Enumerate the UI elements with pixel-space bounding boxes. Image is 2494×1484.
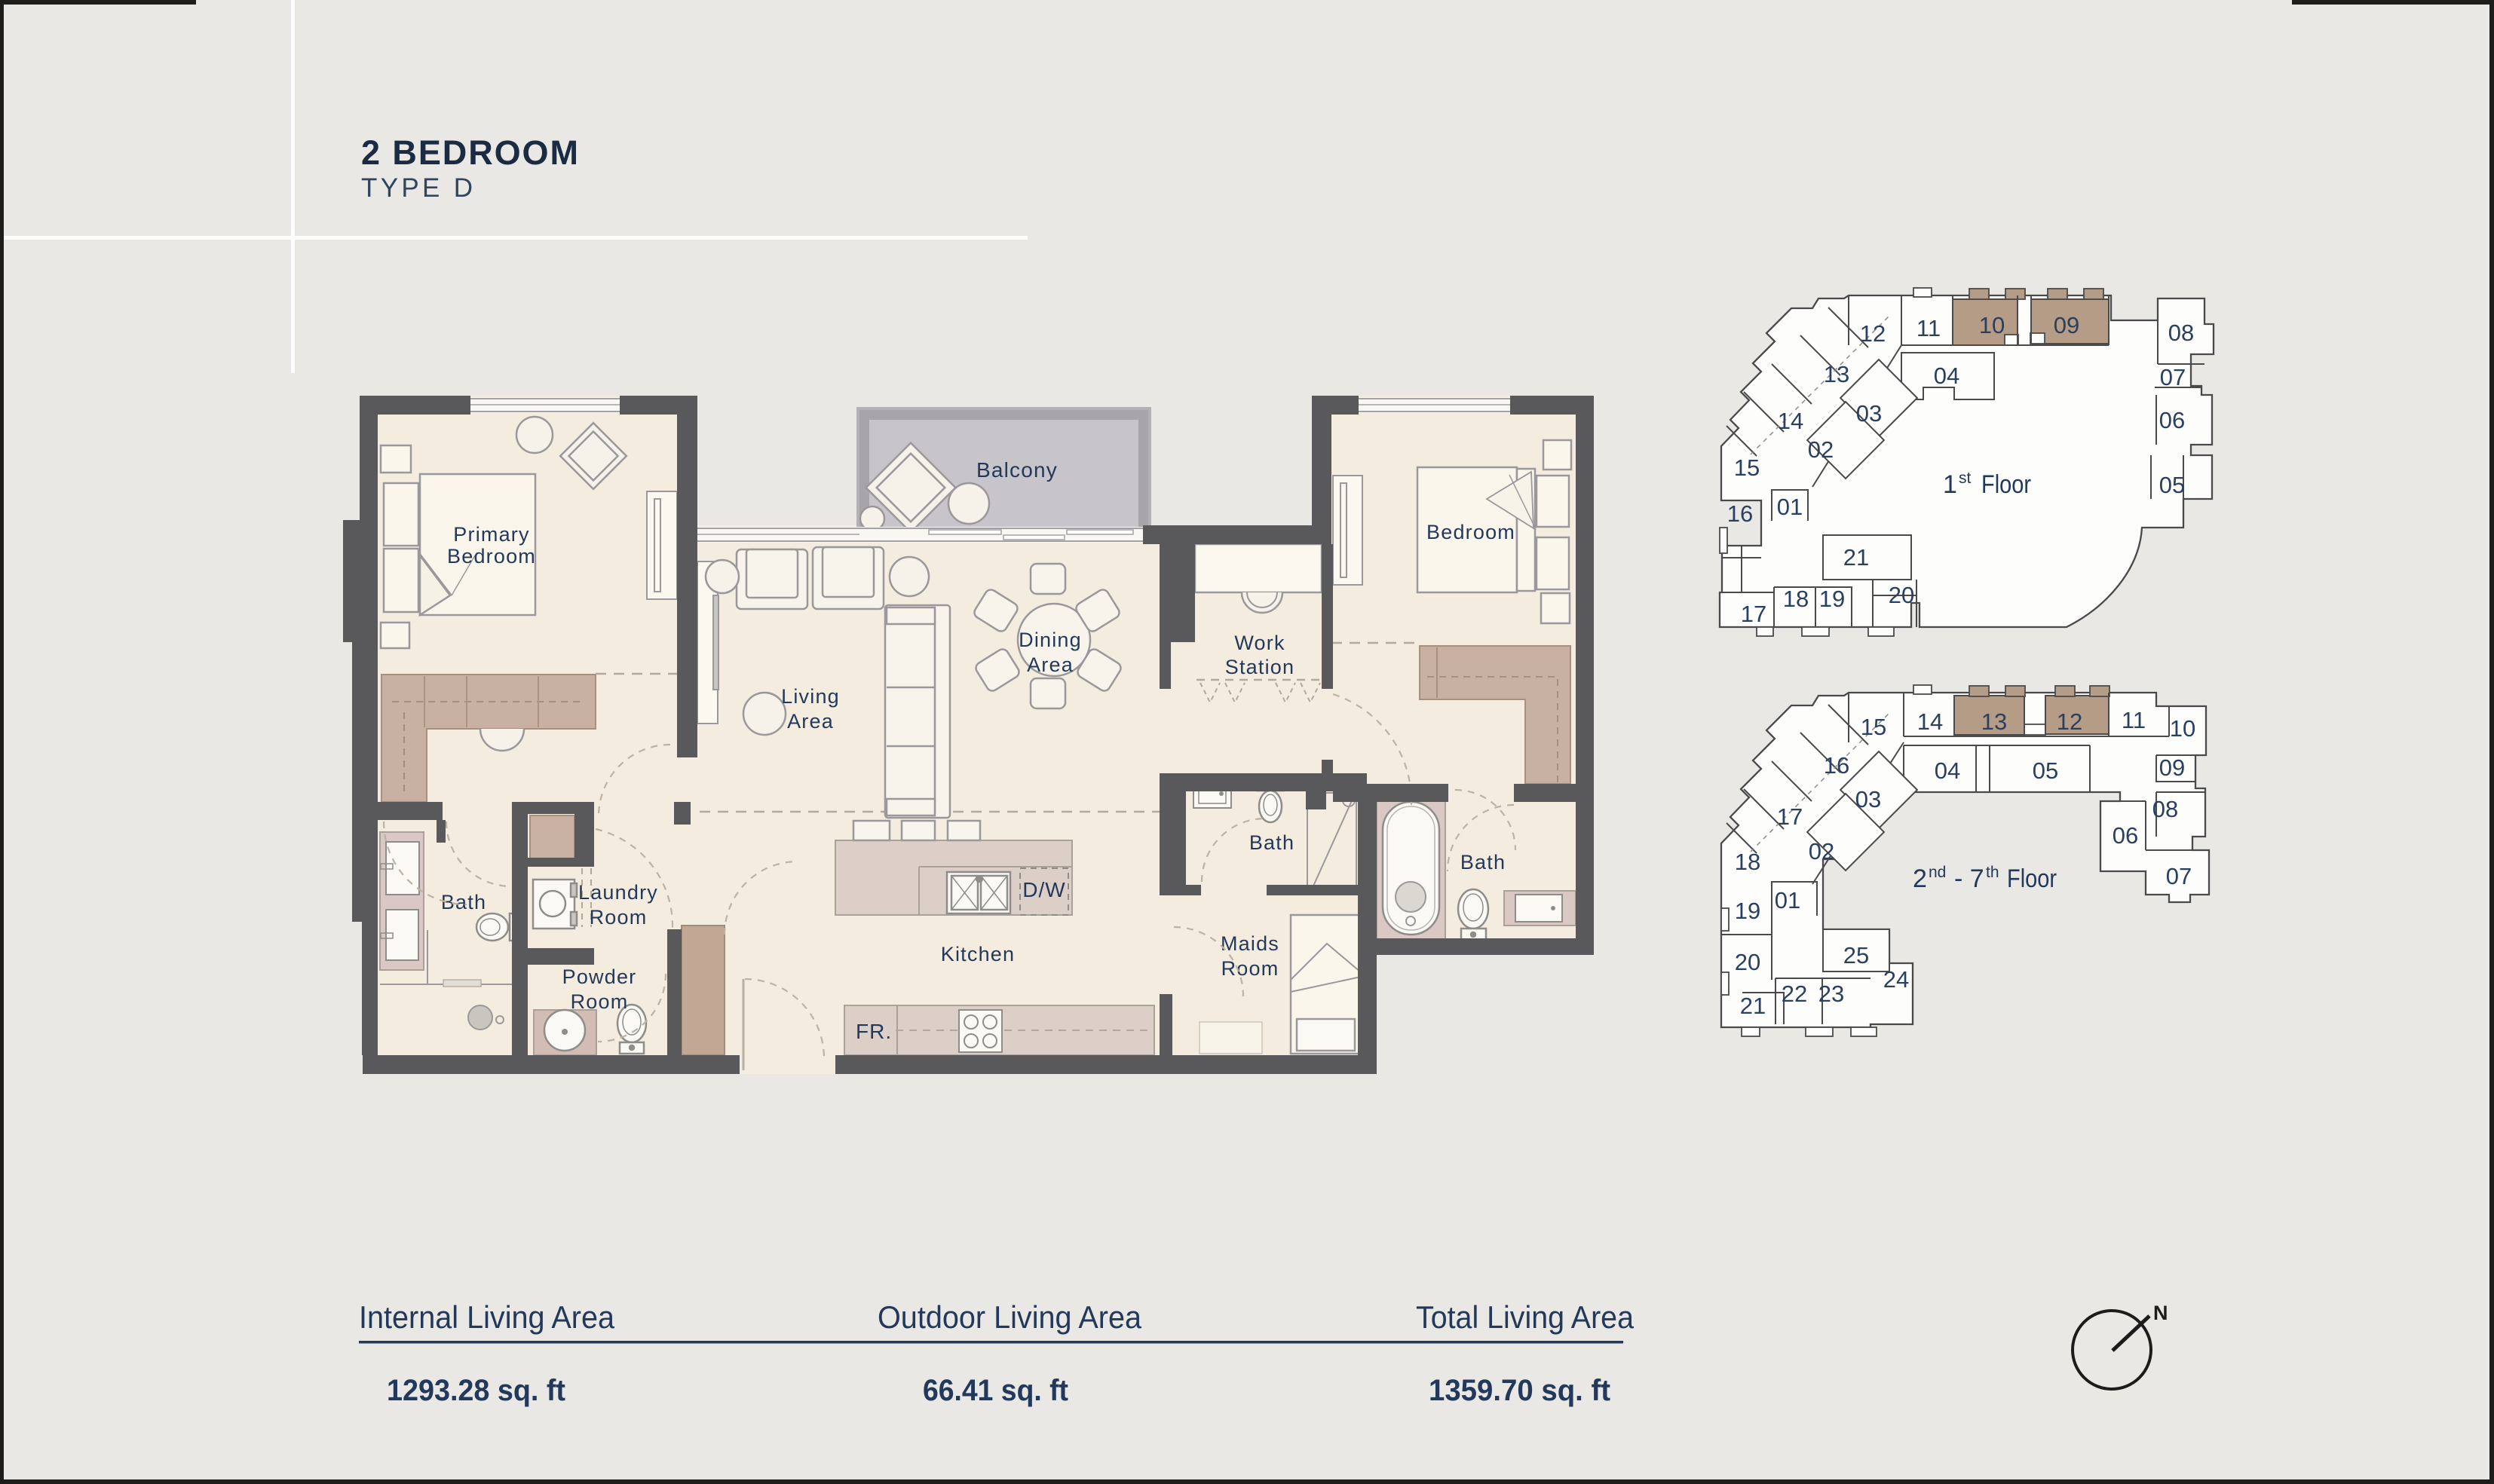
svg-text:Maids: Maids <box>1221 932 1279 955</box>
svg-text:03: 03 <box>1855 786 1881 812</box>
svg-text:22: 22 <box>1782 981 1807 1007</box>
svg-text:21: 21 <box>1843 544 1869 571</box>
svg-text:02: 02 <box>1809 838 1834 864</box>
svg-text:09: 09 <box>2054 312 2079 338</box>
svg-text:21: 21 <box>1740 993 1766 1019</box>
svg-text:Balcony: Balcony <box>976 458 1058 482</box>
svg-text:Area: Area <box>1027 653 1074 676</box>
svg-text:19: 19 <box>1735 898 1760 924</box>
svg-text:Outdoor Living Area: Outdoor Living Area <box>878 1299 1142 1335</box>
svg-text:08: 08 <box>2152 796 2178 822</box>
svg-text:Room: Room <box>571 990 629 1013</box>
svg-text:14: 14 <box>1778 408 1803 434</box>
svg-text:Floor: Floor <box>1981 470 2031 499</box>
svg-text:01: 01 <box>1777 494 1803 520</box>
svg-text:17: 17 <box>1777 803 1803 830</box>
svg-text:16: 16 <box>1824 752 1849 779</box>
svg-text:1: 1 <box>1943 470 1957 499</box>
svg-text:15: 15 <box>1861 714 1886 740</box>
svg-text:18: 18 <box>1783 586 1809 612</box>
svg-text:12: 12 <box>2057 708 2082 735</box>
svg-text:12: 12 <box>1860 320 1886 347</box>
svg-text:1359.70 sq. ft: 1359.70 sq. ft <box>1429 1374 1610 1407</box>
svg-text:04: 04 <box>1935 757 1960 784</box>
svg-text:25: 25 <box>1843 942 1869 968</box>
svg-text:05: 05 <box>2159 472 2185 498</box>
svg-text:20: 20 <box>1735 949 1760 975</box>
svg-text:Work: Work <box>1234 632 1285 654</box>
svg-text:Room: Room <box>590 906 648 929</box>
svg-text:11: 11 <box>2122 707 2146 733</box>
svg-text:07: 07 <box>2160 364 2186 390</box>
svg-text:nd: nd <box>1929 864 1946 881</box>
svg-text:Bedroom: Bedroom <box>1426 521 1515 543</box>
svg-text:Internal Living Area: Internal Living Area <box>359 1299 615 1335</box>
svg-text:13: 13 <box>1981 708 2007 735</box>
svg-text:16: 16 <box>1727 500 1753 527</box>
svg-text:18: 18 <box>1735 849 1760 875</box>
svg-text:Powder: Powder <box>562 965 637 988</box>
svg-text:11: 11 <box>1916 315 1941 341</box>
svg-text:st: st <box>1959 470 1972 487</box>
svg-text:Laundry: Laundry <box>578 881 658 904</box>
svg-text:Total Living Area: Total Living Area <box>1416 1299 1635 1335</box>
svg-text:07: 07 <box>2166 863 2192 889</box>
svg-text:1293.28 sq. ft: 1293.28 sq. ft <box>387 1374 565 1407</box>
svg-text:Bedroom: Bedroom <box>447 545 536 568</box>
svg-text:09: 09 <box>2159 754 2185 781</box>
svg-text:2: 2 <box>1913 864 1927 893</box>
svg-text:Bath: Bath <box>1460 851 1506 874</box>
svg-text:06: 06 <box>2159 407 2185 433</box>
svg-text:Dining: Dining <box>1019 629 1082 651</box>
svg-text:08: 08 <box>2168 320 2194 346</box>
svg-text:Kitchen: Kitchen <box>941 943 1015 965</box>
svg-text:2 BEDROOM: 2 BEDROOM <box>361 133 578 172</box>
svg-text:20: 20 <box>1889 582 1914 608</box>
svg-text:04: 04 <box>1934 363 1959 389</box>
svg-text:03: 03 <box>1856 400 1882 427</box>
svg-text:23: 23 <box>1818 981 1844 1007</box>
svg-text:Station: Station <box>1225 656 1294 678</box>
svg-text:FR.: FR. <box>856 1020 892 1043</box>
svg-text:Primary: Primary <box>453 523 529 546</box>
svg-text:Living: Living <box>781 685 840 708</box>
svg-text:10: 10 <box>1979 312 2005 338</box>
svg-text:Area: Area <box>787 710 834 733</box>
svg-text:19: 19 <box>1819 586 1845 612</box>
svg-text:24: 24 <box>1883 966 1909 993</box>
svg-text:Floor: Floor <box>2007 864 2057 893</box>
svg-text:15: 15 <box>1734 454 1760 481</box>
svg-text:D/W: D/W <box>1022 878 1065 901</box>
svg-text:14: 14 <box>1917 708 1943 735</box>
svg-text:02: 02 <box>1808 436 1834 463</box>
svg-text:05: 05 <box>2033 757 2058 784</box>
svg-text:10: 10 <box>2170 715 2195 742</box>
svg-text:th: th <box>1986 864 1999 881</box>
svg-text:17: 17 <box>1741 601 1766 627</box>
svg-text:- 7: - 7 <box>1954 864 1984 893</box>
svg-text:Bath: Bath <box>1249 831 1294 854</box>
svg-text:Room: Room <box>1221 957 1279 980</box>
svg-text:06: 06 <box>2113 822 2138 849</box>
svg-text:Bath: Bath <box>441 891 486 913</box>
svg-text:N: N <box>2153 1302 2168 1324</box>
svg-text:13: 13 <box>1824 361 1849 387</box>
svg-text:66.41 sq. ft: 66.41 sq. ft <box>923 1374 1068 1407</box>
svg-text:01: 01 <box>1775 887 1800 913</box>
